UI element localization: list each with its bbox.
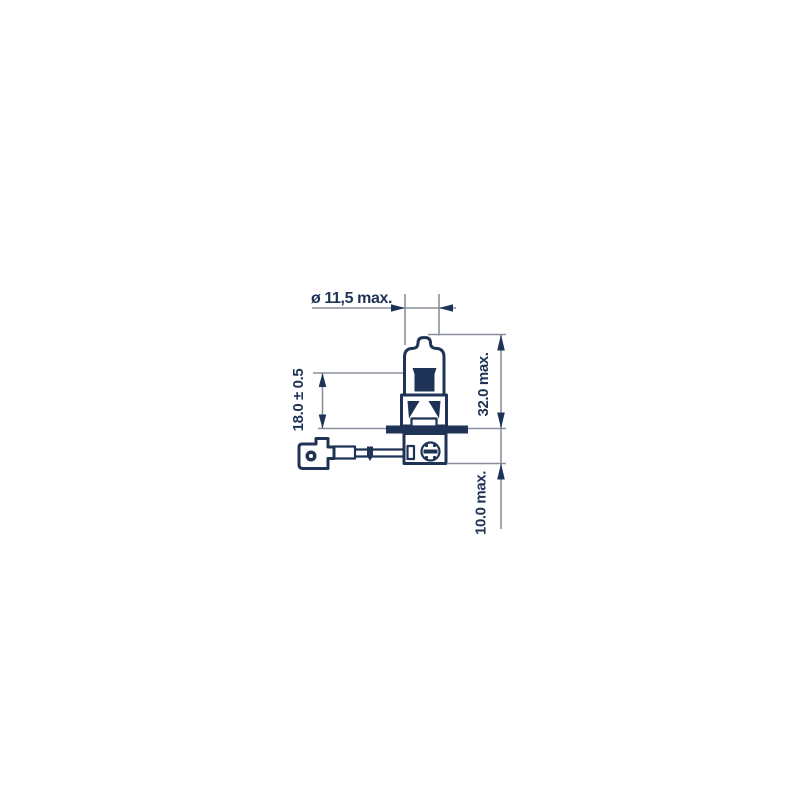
- arrow-lcl-up: [319, 373, 327, 387]
- bulb-drawing: [299, 338, 468, 469]
- wire-crimp-mark: [367, 447, 373, 462]
- arrow-base-up: [497, 464, 505, 480]
- filament: [413, 368, 437, 392]
- screw-dot-3: [425, 456, 428, 459]
- spade-connector: [299, 439, 334, 469]
- wire-insulation-sleeve: [334, 447, 355, 459]
- label-base-length: 10.0 max.: [473, 471, 490, 535]
- arrow-overall-up: [497, 335, 505, 351]
- label-diameter: ø 11,5 max.: [311, 290, 392, 307]
- arrow-lcl-down: [319, 415, 327, 429]
- connector-hole-center: [309, 454, 313, 458]
- screw-dot-2: [433, 444, 436, 447]
- technical-drawing-svg: ø 11,5 max. 18.0 ± 0.5 32.0 max. 10.0 ma…: [0, 0, 800, 800]
- lead-wire: [355, 450, 404, 457]
- base-contact-slot: [408, 446, 415, 459]
- screw-dot-1: [425, 444, 428, 447]
- dimension-labels: ø 11,5 max. 18.0 ± 0.5 32.0 max. 10.0 ma…: [290, 290, 492, 535]
- screw-slot: [424, 450, 438, 454]
- bulb-dimension-diagram: ø 11,5 max. 18.0 ± 0.5 32.0 max. 10.0 ma…: [0, 0, 800, 800]
- arrow-diameter-right: [439, 304, 453, 312]
- arrow-overall-down: [497, 413, 505, 429]
- arrow-diameter-left: [391, 304, 405, 312]
- label-overall-length: 32.0 max.: [475, 352, 492, 416]
- screw-dot-4: [433, 456, 436, 459]
- sleeve-tab: [412, 419, 437, 427]
- label-light-center-length: 18.0 ± 0.5: [290, 369, 307, 432]
